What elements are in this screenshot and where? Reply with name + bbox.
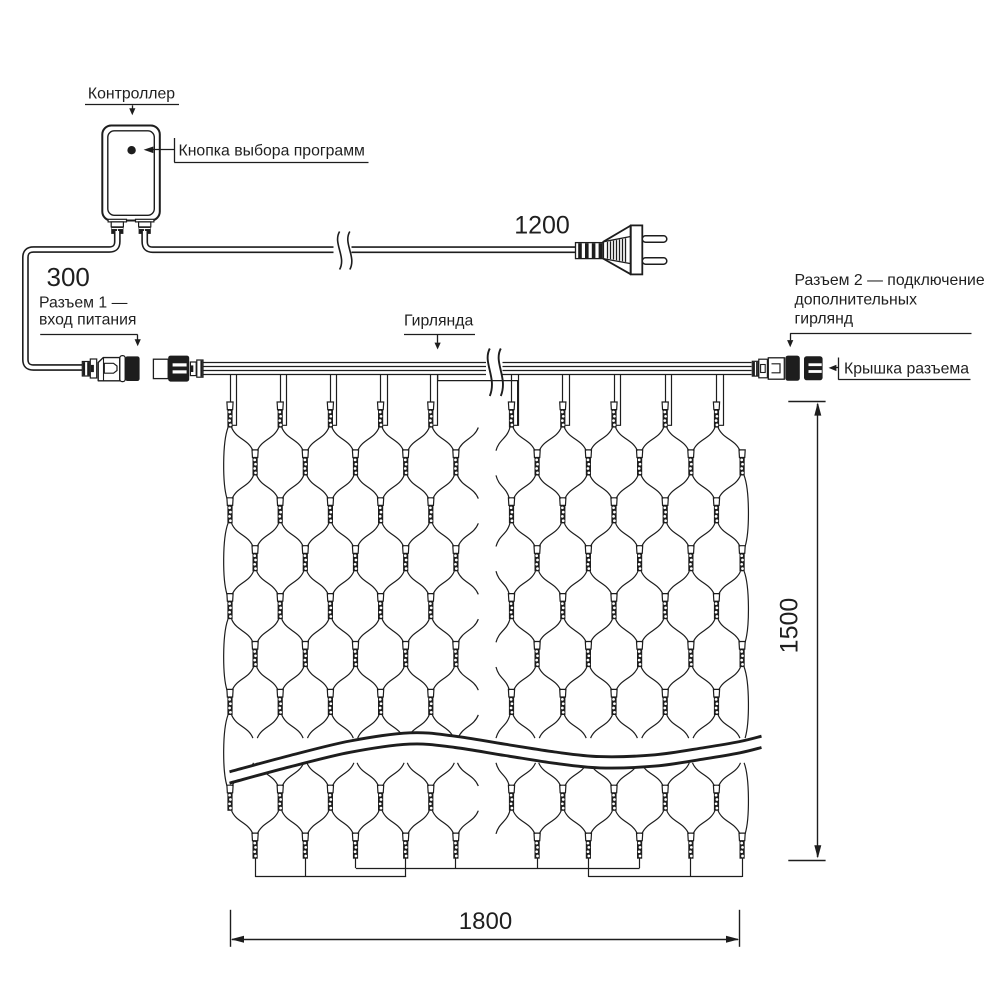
svg-text:Контроллер: Контроллер <box>88 85 175 102</box>
svg-text:300: 300 <box>47 262 90 292</box>
svg-text:1500: 1500 <box>776 598 804 654</box>
svg-text:Разъем 2 — подключение: Разъем 2 — подключение <box>795 272 985 289</box>
svg-text:вход питания: вход питания <box>39 312 136 329</box>
svg-text:дополнительных: дополнительных <box>795 292 918 309</box>
svg-text:гирлянд: гирлянд <box>795 311 854 328</box>
svg-text:1200: 1200 <box>514 212 570 240</box>
svg-text:Гирлянда: Гирлянда <box>404 312 473 329</box>
svg-text:Разъем 1 —: Разъем 1 — <box>39 294 128 311</box>
svg-text:1800: 1800 <box>459 908 512 935</box>
svg-text:Кнопка выбора программ: Кнопка выбора программ <box>179 143 365 160</box>
svg-text:Крышка разъема: Крышка разъема <box>844 360 969 377</box>
